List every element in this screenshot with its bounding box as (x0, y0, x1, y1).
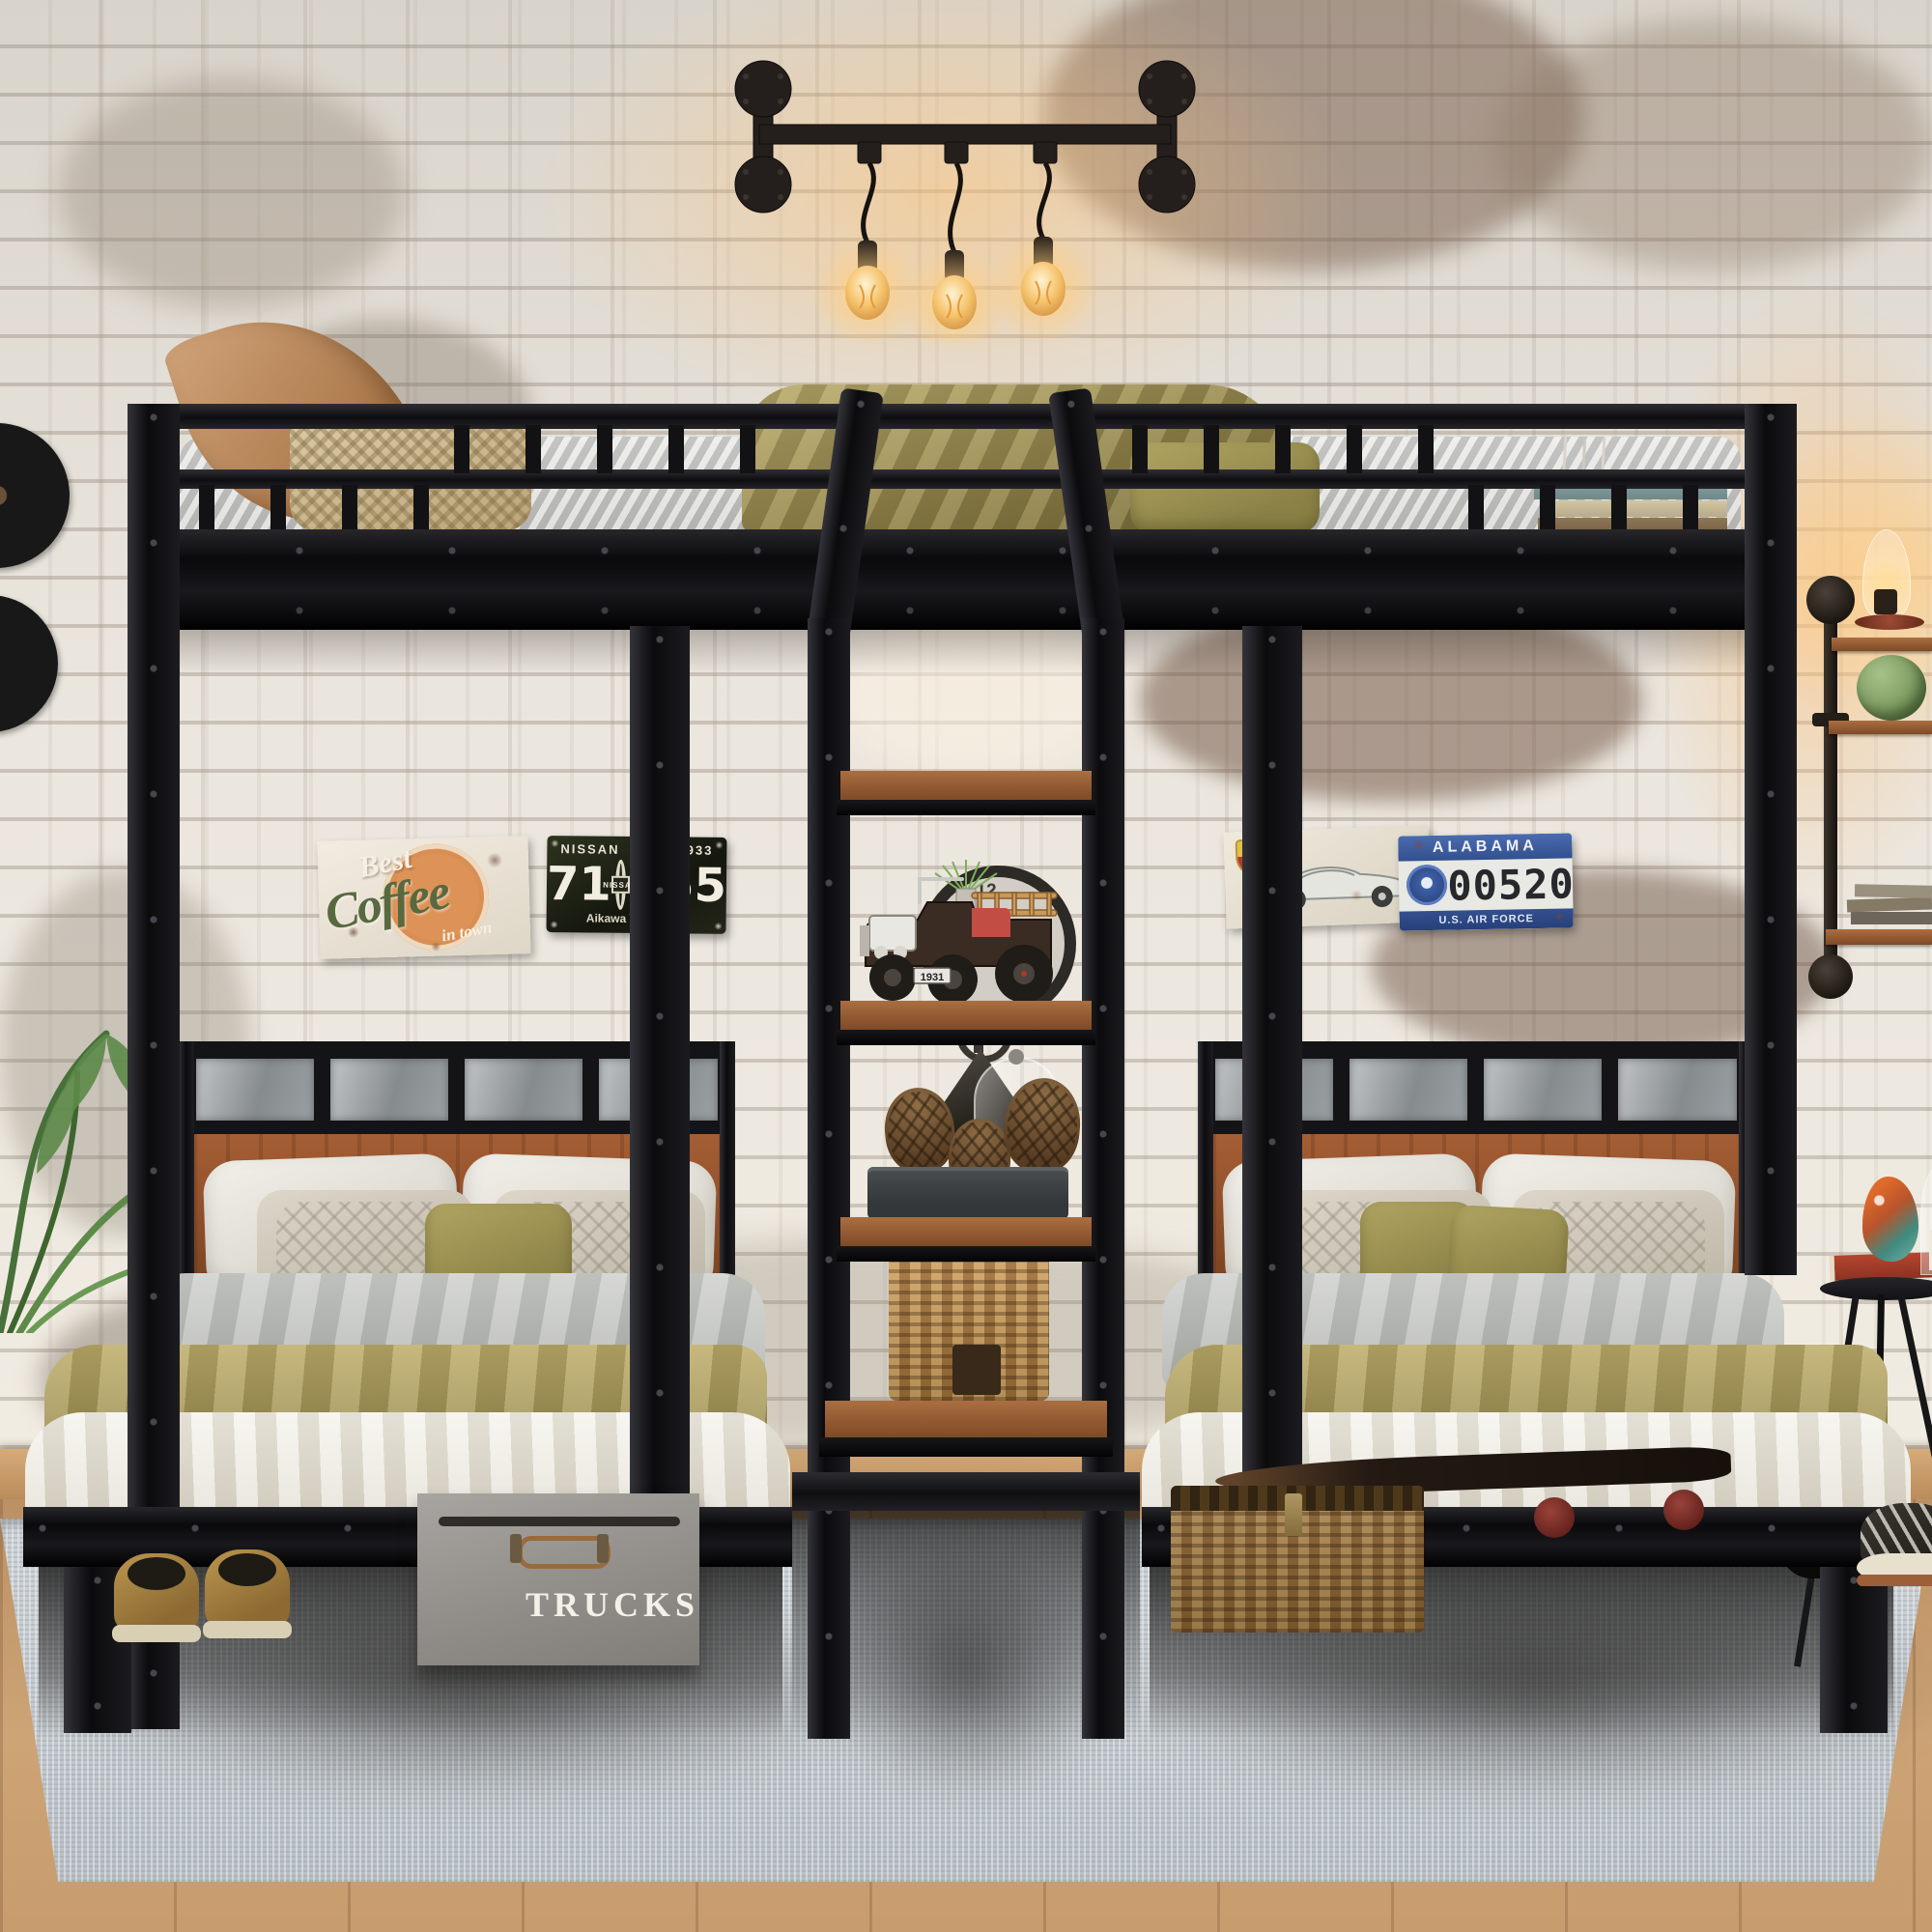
box-handle-clip (510, 1534, 522, 1563)
glass-vase (1862, 1177, 1918, 1262)
headboard-pane (196, 1059, 314, 1121)
coffee-sign: Best Coffee in town (317, 836, 530, 959)
oil-lamp-base (1855, 614, 1924, 630)
skateboard-wheel (1663, 1490, 1704, 1530)
ladder-step-lip (819, 1437, 1113, 1457)
tan-sneaker (114, 1553, 199, 1646)
oil-lamp-burner (1874, 589, 1897, 614)
inner-post-right (1242, 626, 1302, 1530)
headboard-pane (1618, 1059, 1737, 1121)
sneaker-sole-bottom (1857, 1575, 1932, 1586)
headboard-post (179, 1041, 194, 1285)
deck-wall-shadow (135, 630, 1787, 674)
sneaker-opening (128, 1557, 185, 1590)
industrial-bunk-bedroom-photo: Best Coffee in town NISSAN 933 71 NISSAN… (0, 0, 1932, 1932)
edison-bulbs (811, 233, 1099, 343)
book (1851, 912, 1932, 924)
wall-pipe-lamp (580, 53, 1217, 343)
chunky-sneaker (1861, 1503, 1932, 1596)
sneaker-sole (203, 1621, 292, 1638)
box-slot (439, 1517, 680, 1526)
inner-post-left (630, 626, 690, 1530)
shelf-pipe-flange (1806, 576, 1855, 624)
shelf-book (867, 1167, 1068, 1219)
alabama-plate-sign: ALABAMA 00520 U.S. AIR FORCE (1398, 833, 1574, 930)
pipe-wall-shelf (1797, 541, 1932, 1005)
ladder-shelf-lip (837, 1030, 1095, 1045)
wall-stain (1497, 19, 1932, 270)
shelf-board (1826, 929, 1932, 945)
shelf-pipe-flange (1808, 954, 1853, 999)
corner-post-right (1745, 404, 1797, 1275)
oil-lamp (1855, 529, 1932, 641)
skateboard-wheel (1534, 1497, 1575, 1538)
ladder-step-board (825, 1401, 1107, 1437)
wall-stain (58, 77, 406, 309)
coffee-sign-rust (317, 836, 530, 959)
toy-truck: 1931 (858, 860, 1074, 1005)
guardrail-top (128, 404, 1795, 429)
ladder-shelf-board (840, 771, 1092, 800)
wicker-basket (889, 1256, 1049, 1401)
wicker-chest (1171, 1486, 1424, 1633)
moss-ball (1857, 655, 1926, 721)
guardrail-slats (1132, 425, 1478, 473)
book (1855, 884, 1932, 897)
box-label: TRUCKS (526, 1584, 699, 1625)
basket-hole (952, 1345, 1001, 1395)
truck-plate-text: 1931 (921, 972, 944, 983)
ladder-shelf-lip (837, 1246, 1095, 1262)
headboard-post (1198, 1041, 1213, 1285)
cloche-knob (1009, 1049, 1024, 1065)
ladder-shelf-lip (837, 800, 1095, 815)
shelf-board (1829, 721, 1932, 734)
upper-deck-band (128, 529, 1795, 630)
trucks-storage-box: TRUCKS (417, 1493, 699, 1665)
headboard-post (720, 1041, 735, 1285)
ladder-crossbar (792, 1472, 1140, 1511)
ladder-shelf-board (840, 1001, 1092, 1030)
headboard-pane (465, 1059, 582, 1121)
sneaker-opening (218, 1553, 276, 1586)
tan-sneaker (205, 1549, 290, 1642)
cloche-small (1920, 1167, 1932, 1275)
pipe-frame (735, 61, 1195, 213)
box-handle-clip (597, 1534, 609, 1563)
chest-buckle (1285, 1493, 1302, 1536)
guardrail-slats (454, 425, 800, 473)
ladder-shelf-board (840, 1217, 1092, 1246)
sneaker-sole (112, 1625, 201, 1642)
headboard-pane (1484, 1059, 1602, 1121)
headboard-pane (1350, 1059, 1467, 1121)
table-top (1820, 1277, 1932, 1300)
books-stack (1845, 873, 1932, 929)
headboard-pane (330, 1059, 448, 1121)
book (1847, 896, 1932, 912)
alabama-rust (1398, 833, 1574, 930)
